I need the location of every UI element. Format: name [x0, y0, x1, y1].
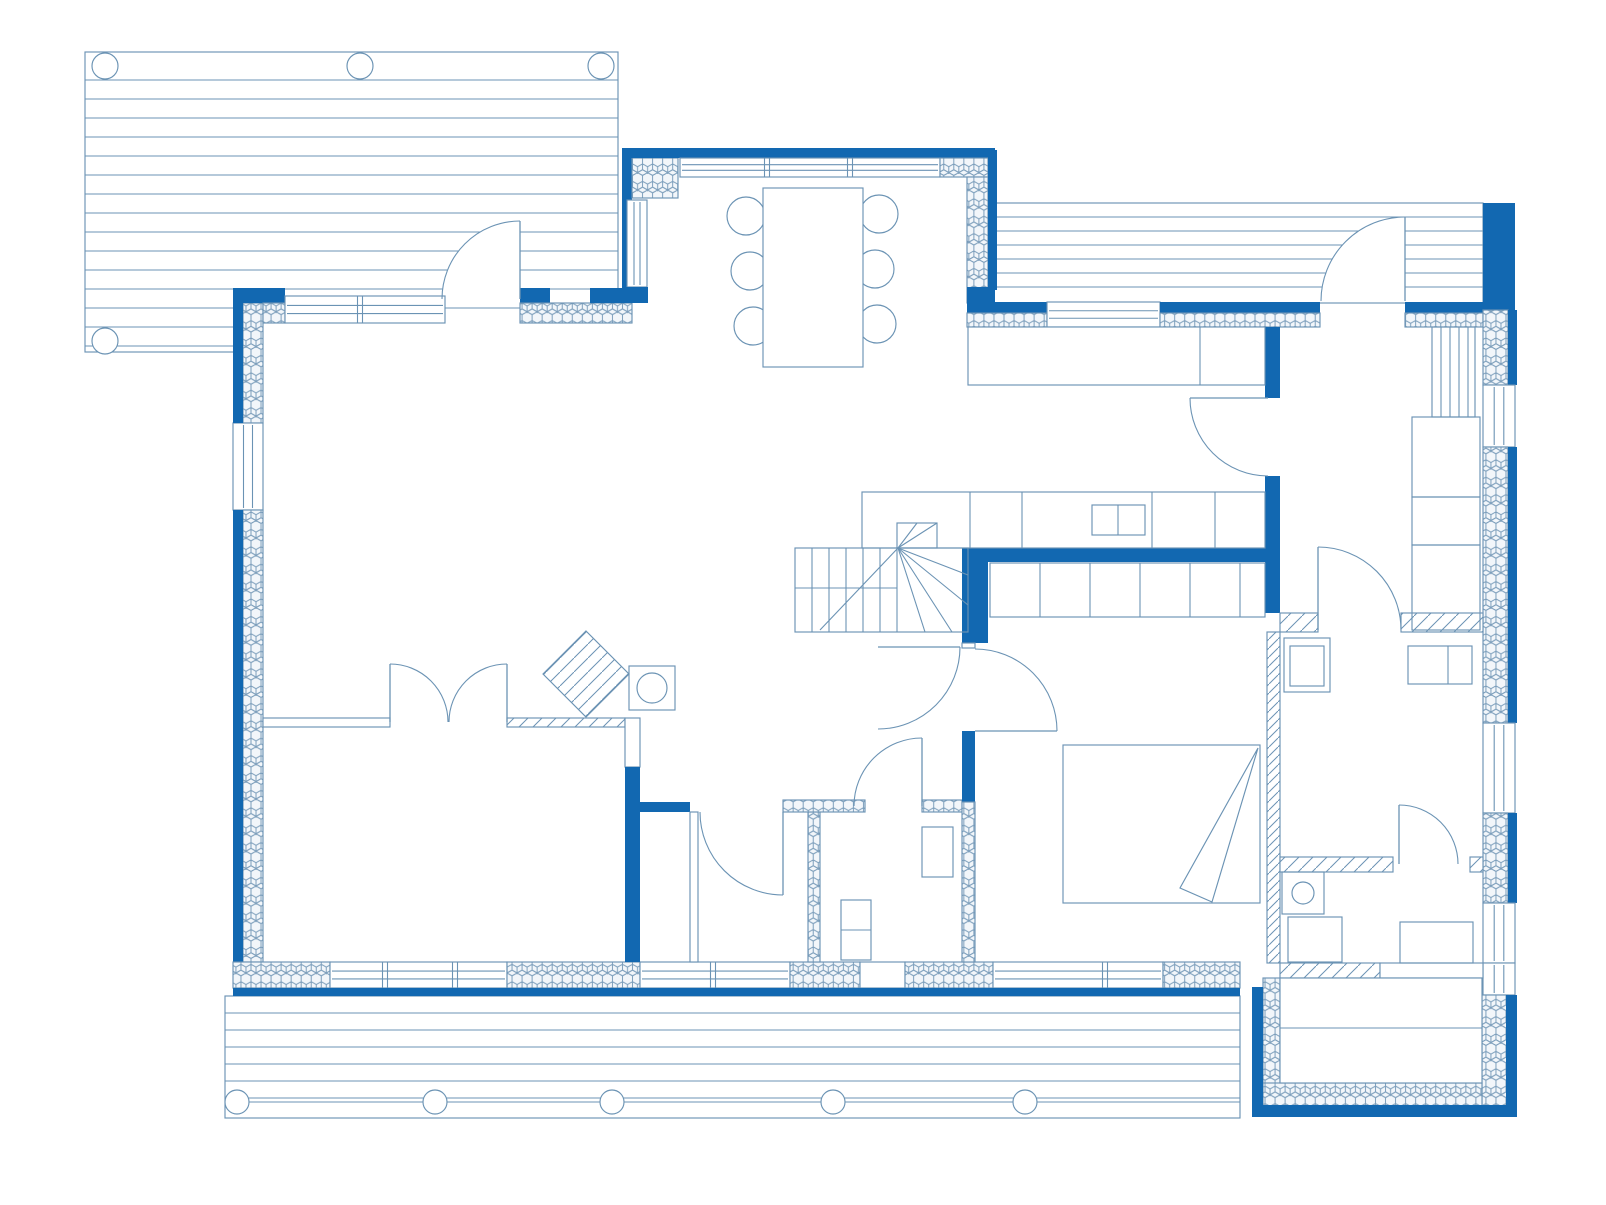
extension-blue-left — [1252, 987, 1263, 1113]
wall-left-upper — [243, 303, 263, 423]
floor-plan-svg — [0, 0, 1606, 1205]
window-right-d — [1483, 963, 1515, 995]
office-wall-left — [263, 718, 390, 727]
nook-left-blue-base — [622, 287, 648, 303]
window-right-c — [1483, 903, 1515, 963]
wall-north-left-blue-a — [520, 288, 550, 303]
kitchen-wall-blue-a — [1265, 327, 1280, 398]
interior-wall-cavity — [625, 718, 640, 767]
window-nook-left — [627, 200, 647, 287]
window-left-wall — [233, 423, 263, 510]
wall-left-blue-upper — [233, 303, 243, 423]
deck-top-left-post — [92, 53, 118, 79]
wall-right-blue-d — [1506, 995, 1517, 1117]
wall-right-hatch-c — [1483, 813, 1508, 903]
wall-north-left-hatch — [520, 303, 632, 323]
dining-table — [763, 188, 863, 367]
bathroom-wall-a — [1280, 857, 1393, 872]
wall-right-blue-a — [1508, 310, 1517, 385]
wall-south-blue-stripe — [233, 988, 1240, 996]
nook-corner-hatch-right — [940, 158, 988, 177]
wc-utility-divider — [808, 812, 820, 962]
deck-top-right — [989, 203, 1483, 303]
hall-wall-hatch-b — [922, 800, 962, 812]
extension-hatch-bottom — [1263, 1083, 1482, 1108]
bedroom-wall-hatch — [962, 802, 975, 962]
nook-right-wall-hatch — [967, 177, 988, 303]
wall-right-hatch-b — [1483, 447, 1508, 723]
deck-top-left-post — [588, 53, 614, 79]
wall-right-blue-b — [1508, 447, 1517, 723]
nook-corner-hatch-left — [632, 158, 678, 198]
wall-north-right-blue-a — [967, 302, 1047, 313]
wall-north-right-blue-c — [1405, 302, 1483, 313]
bearing-wall-blue — [988, 548, 1265, 562]
extension-threshold — [1380, 963, 1483, 978]
corner-top-left-hatch — [263, 303, 285, 323]
deck-top-left-post — [347, 53, 373, 79]
window-south-bedroom — [993, 962, 1163, 988]
deck-right-blue-block — [1483, 203, 1515, 310]
hall-wall-blue-stub — [625, 802, 690, 812]
window-north-left — [285, 296, 445, 323]
bathroom-wall-b — [1470, 857, 1483, 872]
wall-south-hatch-e — [1163, 962, 1240, 988]
nook-right-wall-blue — [988, 150, 997, 290]
wall-south-hatch-d — [905, 962, 993, 988]
bedroom-wall-blue — [962, 731, 975, 802]
deck-bottom-post — [423, 1090, 447, 1114]
window-nook-top — [680, 158, 940, 177]
wc-wall-left — [690, 812, 698, 962]
door-threshold-south — [860, 962, 905, 988]
stair-wall-blue — [962, 548, 988, 643]
utility-room-wall-b — [1401, 613, 1483, 632]
chimney-wall — [1267, 632, 1280, 963]
wall-left-lower — [243, 510, 263, 962]
wall-north-right-blue-b — [1160, 302, 1320, 313]
extension-blue-bottom — [1252, 1105, 1515, 1117]
dining-chair — [858, 305, 896, 343]
dining-chair — [727, 197, 765, 235]
wall-north-right-hatch-a — [967, 313, 1047, 327]
wall-right-hatch-a — [1483, 310, 1508, 385]
stove-burner — [637, 673, 667, 703]
kitchen-counter-north — [968, 327, 1265, 385]
wall-north-right-hatch-b — [1160, 313, 1320, 327]
bedroom-closets — [990, 563, 1265, 617]
dining-chair — [860, 195, 898, 233]
bedroom-door-jamb — [962, 643, 975, 648]
wall-right-blue-c — [1508, 813, 1517, 903]
window-right-b — [1483, 723, 1515, 813]
deck-bottom-post — [225, 1090, 249, 1114]
wall-south-hatch-a — [233, 962, 330, 988]
floor-plan-root — [85, 52, 1517, 1118]
extension-room — [1280, 978, 1482, 1083]
interior-wall-blue — [625, 767, 640, 962]
utility-room-wall-a — [1280, 613, 1318, 632]
window-north-right — [1047, 302, 1160, 327]
wall-south-hatch-b — [507, 962, 640, 988]
hall-wall-hatch-a — [783, 800, 865, 812]
sauna-south-wall — [1280, 963, 1380, 978]
wall-left-blue-lower — [233, 510, 243, 965]
kitchen-counter-south — [862, 492, 1265, 548]
deck-bottom-post — [1013, 1090, 1037, 1114]
office-wall-right — [507, 718, 625, 727]
floor-plan-page — [0, 0, 1606, 1205]
wall-north-right-hatch-c — [1405, 313, 1483, 327]
nook-top-blue — [622, 148, 995, 158]
deck-bottom-post — [600, 1090, 624, 1114]
deck-bottom-post — [821, 1090, 845, 1114]
window-south-a — [330, 962, 507, 988]
deck-top-left-post — [92, 328, 118, 354]
deck-bottom — [225, 996, 1240, 1118]
corner-top-left-blue — [233, 288, 285, 303]
wall-south-hatch-c — [790, 962, 860, 988]
nook-right-blue-base — [967, 287, 995, 303]
sauna-basin — [1292, 882, 1314, 904]
wall-right-hatch-d — [1482, 995, 1508, 1108]
window-right-a — [1483, 385, 1515, 447]
kitchen-wall-blue-b — [1265, 476, 1280, 613]
